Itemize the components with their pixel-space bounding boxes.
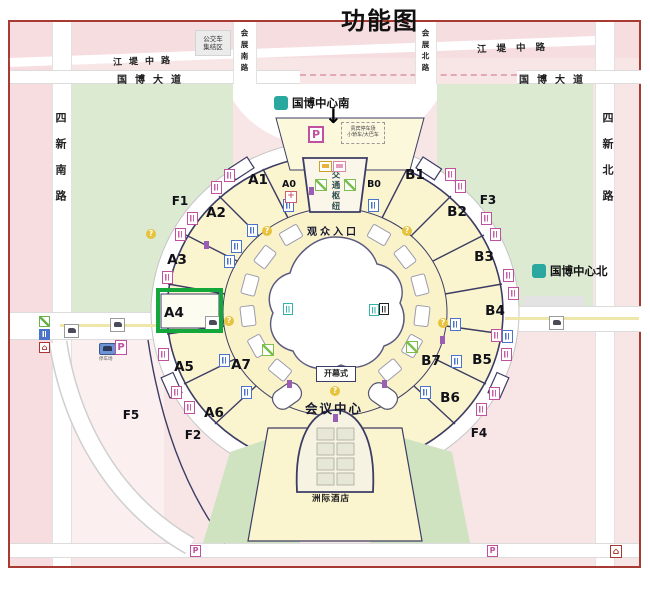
hall-label-b2: B2 (447, 204, 467, 220)
door-icon (287, 380, 292, 388)
toilet-icon (184, 401, 195, 414)
hall-label-b7: B7 (421, 353, 441, 369)
door-icon (309, 187, 314, 195)
toilet-icon (489, 387, 500, 400)
hall-label-f5: F5 (123, 408, 140, 422)
taxi-icon (333, 161, 346, 172)
stairs-icon (368, 199, 379, 212)
road-label-guobo-east: 国博大道 (519, 71, 591, 86)
toilet-icon (491, 329, 502, 342)
metro-icon (274, 96, 288, 110)
stairs-icon (451, 355, 462, 368)
transport-hub-label: 交通枢纽 (329, 170, 341, 212)
hall-label-a6: A6 (204, 405, 224, 421)
car-glyph (114, 322, 122, 327)
toilet-icon (187, 212, 198, 225)
bus-icon (319, 161, 332, 172)
hall-label-b3: B3 (474, 249, 494, 265)
vip-parking-note: 贵宾停车场 小轿车/大巴车 (341, 122, 385, 144)
stairs-icon (219, 354, 230, 367)
road-label-sixin-north: 四新北路 (599, 112, 615, 216)
escalator-icon (344, 179, 356, 191)
toilet-icon (158, 348, 169, 361)
road-label-sixin-south: 四新南路 (52, 112, 68, 216)
door-icon (382, 380, 387, 388)
car-icon (549, 316, 564, 330)
info-icon: ? (402, 226, 412, 236)
expo-function-map: 功能图 四新南路 四新北路 江堤中路 江堤中路 国博大道 国博大道 会展南路 会… (0, 0, 650, 592)
medical-icon: + (285, 191, 297, 203)
south-parking-icon-west: P (190, 545, 201, 557)
hall-label-b6: B6 (440, 390, 460, 406)
escalator-icon (406, 341, 418, 353)
hall-label-a1: A1 (248, 172, 268, 188)
hall-a4-highlight-box (156, 288, 223, 333)
hall-label-f3: F3 (480, 193, 497, 207)
road-label-huizhan-south: 会展南路 (239, 29, 250, 75)
vip-parking-line2: 小轿车/大巴车 (342, 132, 384, 138)
bus-area-line2: 集结区 (196, 43, 230, 51)
restaurant-icon (369, 304, 379, 316)
door-icon (204, 241, 209, 249)
toilet-icon (455, 180, 466, 193)
hall-label-a2: A2 (206, 205, 226, 221)
audience-entrance-label: 观众入口 (307, 223, 359, 238)
hall-label-b1: B1 (405, 167, 425, 183)
hall-label-f2: F2 (185, 428, 202, 442)
hall-label-b0: B0 (367, 179, 381, 190)
info-icon: ? (224, 316, 234, 326)
car-glyph (68, 328, 76, 333)
page-title: 功能图 (300, 1, 460, 36)
stairs-icon (241, 386, 252, 399)
road-label-jiangdi-east: 江堤中路 (477, 39, 555, 56)
road-label-guobo-west: 国博大道 (117, 71, 189, 86)
hotel-label: 洲际酒店 (312, 492, 350, 504)
toilet-icon (211, 181, 222, 194)
south-parking-icon-east: P (487, 545, 498, 557)
road-label-jiangdi-west: 江堤中路 (113, 53, 177, 68)
toilet-icon (481, 212, 492, 225)
escalator-icon (262, 344, 274, 356)
info-icon: ? (330, 386, 340, 396)
station-guobo-center-north: 国博中心北 (532, 263, 608, 279)
toilet-icon (224, 169, 235, 182)
restaurant-icon (283, 303, 293, 315)
hall-label-f1: F1 (172, 194, 189, 208)
hall-label-b4: B4 (485, 303, 505, 319)
stairs-icon (247, 224, 258, 237)
stairs-icon (420, 386, 431, 399)
metro-icon (532, 264, 546, 278)
car-glyph (553, 320, 561, 325)
door-icon (333, 414, 338, 422)
toilet-icon (501, 348, 512, 361)
bus-glyph (322, 164, 329, 168)
down-arrow-icon: ↓ (325, 106, 342, 126)
car-icon (64, 324, 79, 338)
station-label: 国博中心北 (550, 263, 608, 279)
escalator-legend-icon (39, 316, 50, 327)
toilet-icon (490, 228, 501, 241)
west-parking-icon: P (115, 340, 127, 355)
home-legend-icon: ⌂ (39, 342, 50, 353)
toilet-icon (175, 228, 186, 241)
toilet-icon (476, 403, 487, 416)
stairs-icon (224, 255, 235, 268)
info-icon: ? (438, 318, 448, 328)
stairs-icon (450, 318, 461, 331)
bus-area-line1: 公交车 (196, 35, 230, 43)
west-parking-label: 停车场 (99, 356, 113, 362)
door-icon (440, 336, 445, 344)
escalator-icon (315, 179, 327, 191)
stairs-icon (231, 240, 242, 253)
toilet-icon (162, 271, 173, 284)
car-icon (99, 343, 116, 355)
restaurant-icon (379, 303, 389, 315)
hall-label-a5: A5 (174, 359, 194, 375)
toilet-icon (508, 287, 519, 300)
hall-label-b5: B5 (472, 352, 492, 368)
info-icon: ? (146, 229, 156, 239)
vip-parking-icon: P (308, 126, 324, 143)
info-icon: ? (262, 226, 272, 236)
car-glyph (103, 346, 112, 351)
hall-label-a7: A7 (231, 357, 251, 373)
car-icon (110, 318, 125, 332)
toilet-icon (171, 386, 182, 399)
hotel-home-icon: ⌂ (610, 545, 622, 558)
accessibility-legend-icon (39, 329, 50, 340)
hall-label-f4: F4 (471, 426, 488, 440)
bus-marshalling-area: 公交车 集结区 (195, 30, 231, 56)
hall-label-a0: A0 (282, 179, 296, 190)
opening-ceremony-box: 开幕式 (316, 366, 356, 382)
taxi-glyph (336, 164, 343, 168)
hall-label-a3: A3 (167, 252, 187, 268)
stairs-icon (502, 330, 513, 343)
toilet-icon (503, 269, 514, 282)
